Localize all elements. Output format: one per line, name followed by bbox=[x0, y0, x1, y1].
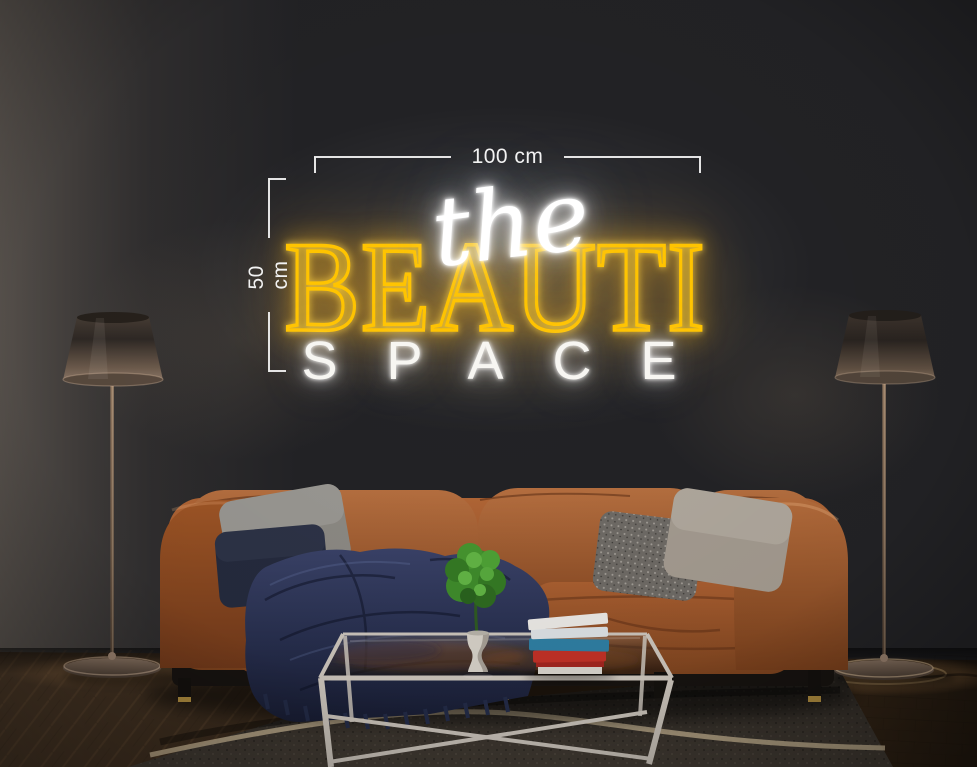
dimension-line bbox=[314, 156, 451, 158]
dimension-line bbox=[268, 312, 270, 372]
height-dimension-label: 50 cm bbox=[245, 261, 293, 290]
neon-script-word: the bbox=[426, 159, 596, 289]
dimension-tick bbox=[699, 157, 701, 173]
width-dimension-label: 100 cm bbox=[472, 145, 544, 169]
height-dimension: 50 cm bbox=[250, 178, 290, 372]
dimension-line bbox=[268, 178, 270, 238]
dimension-line bbox=[564, 156, 701, 158]
product-photo-neon-sign-room: the BEAUTI SPACE 100 cm 50 cm bbox=[0, 0, 977, 767]
dimension-tick bbox=[314, 157, 316, 173]
dimension-tick bbox=[269, 178, 286, 180]
dimension-tick bbox=[269, 370, 286, 372]
width-dimension: 100 cm bbox=[314, 156, 701, 176]
neon-bottom-word: SPACE bbox=[301, 330, 725, 392]
